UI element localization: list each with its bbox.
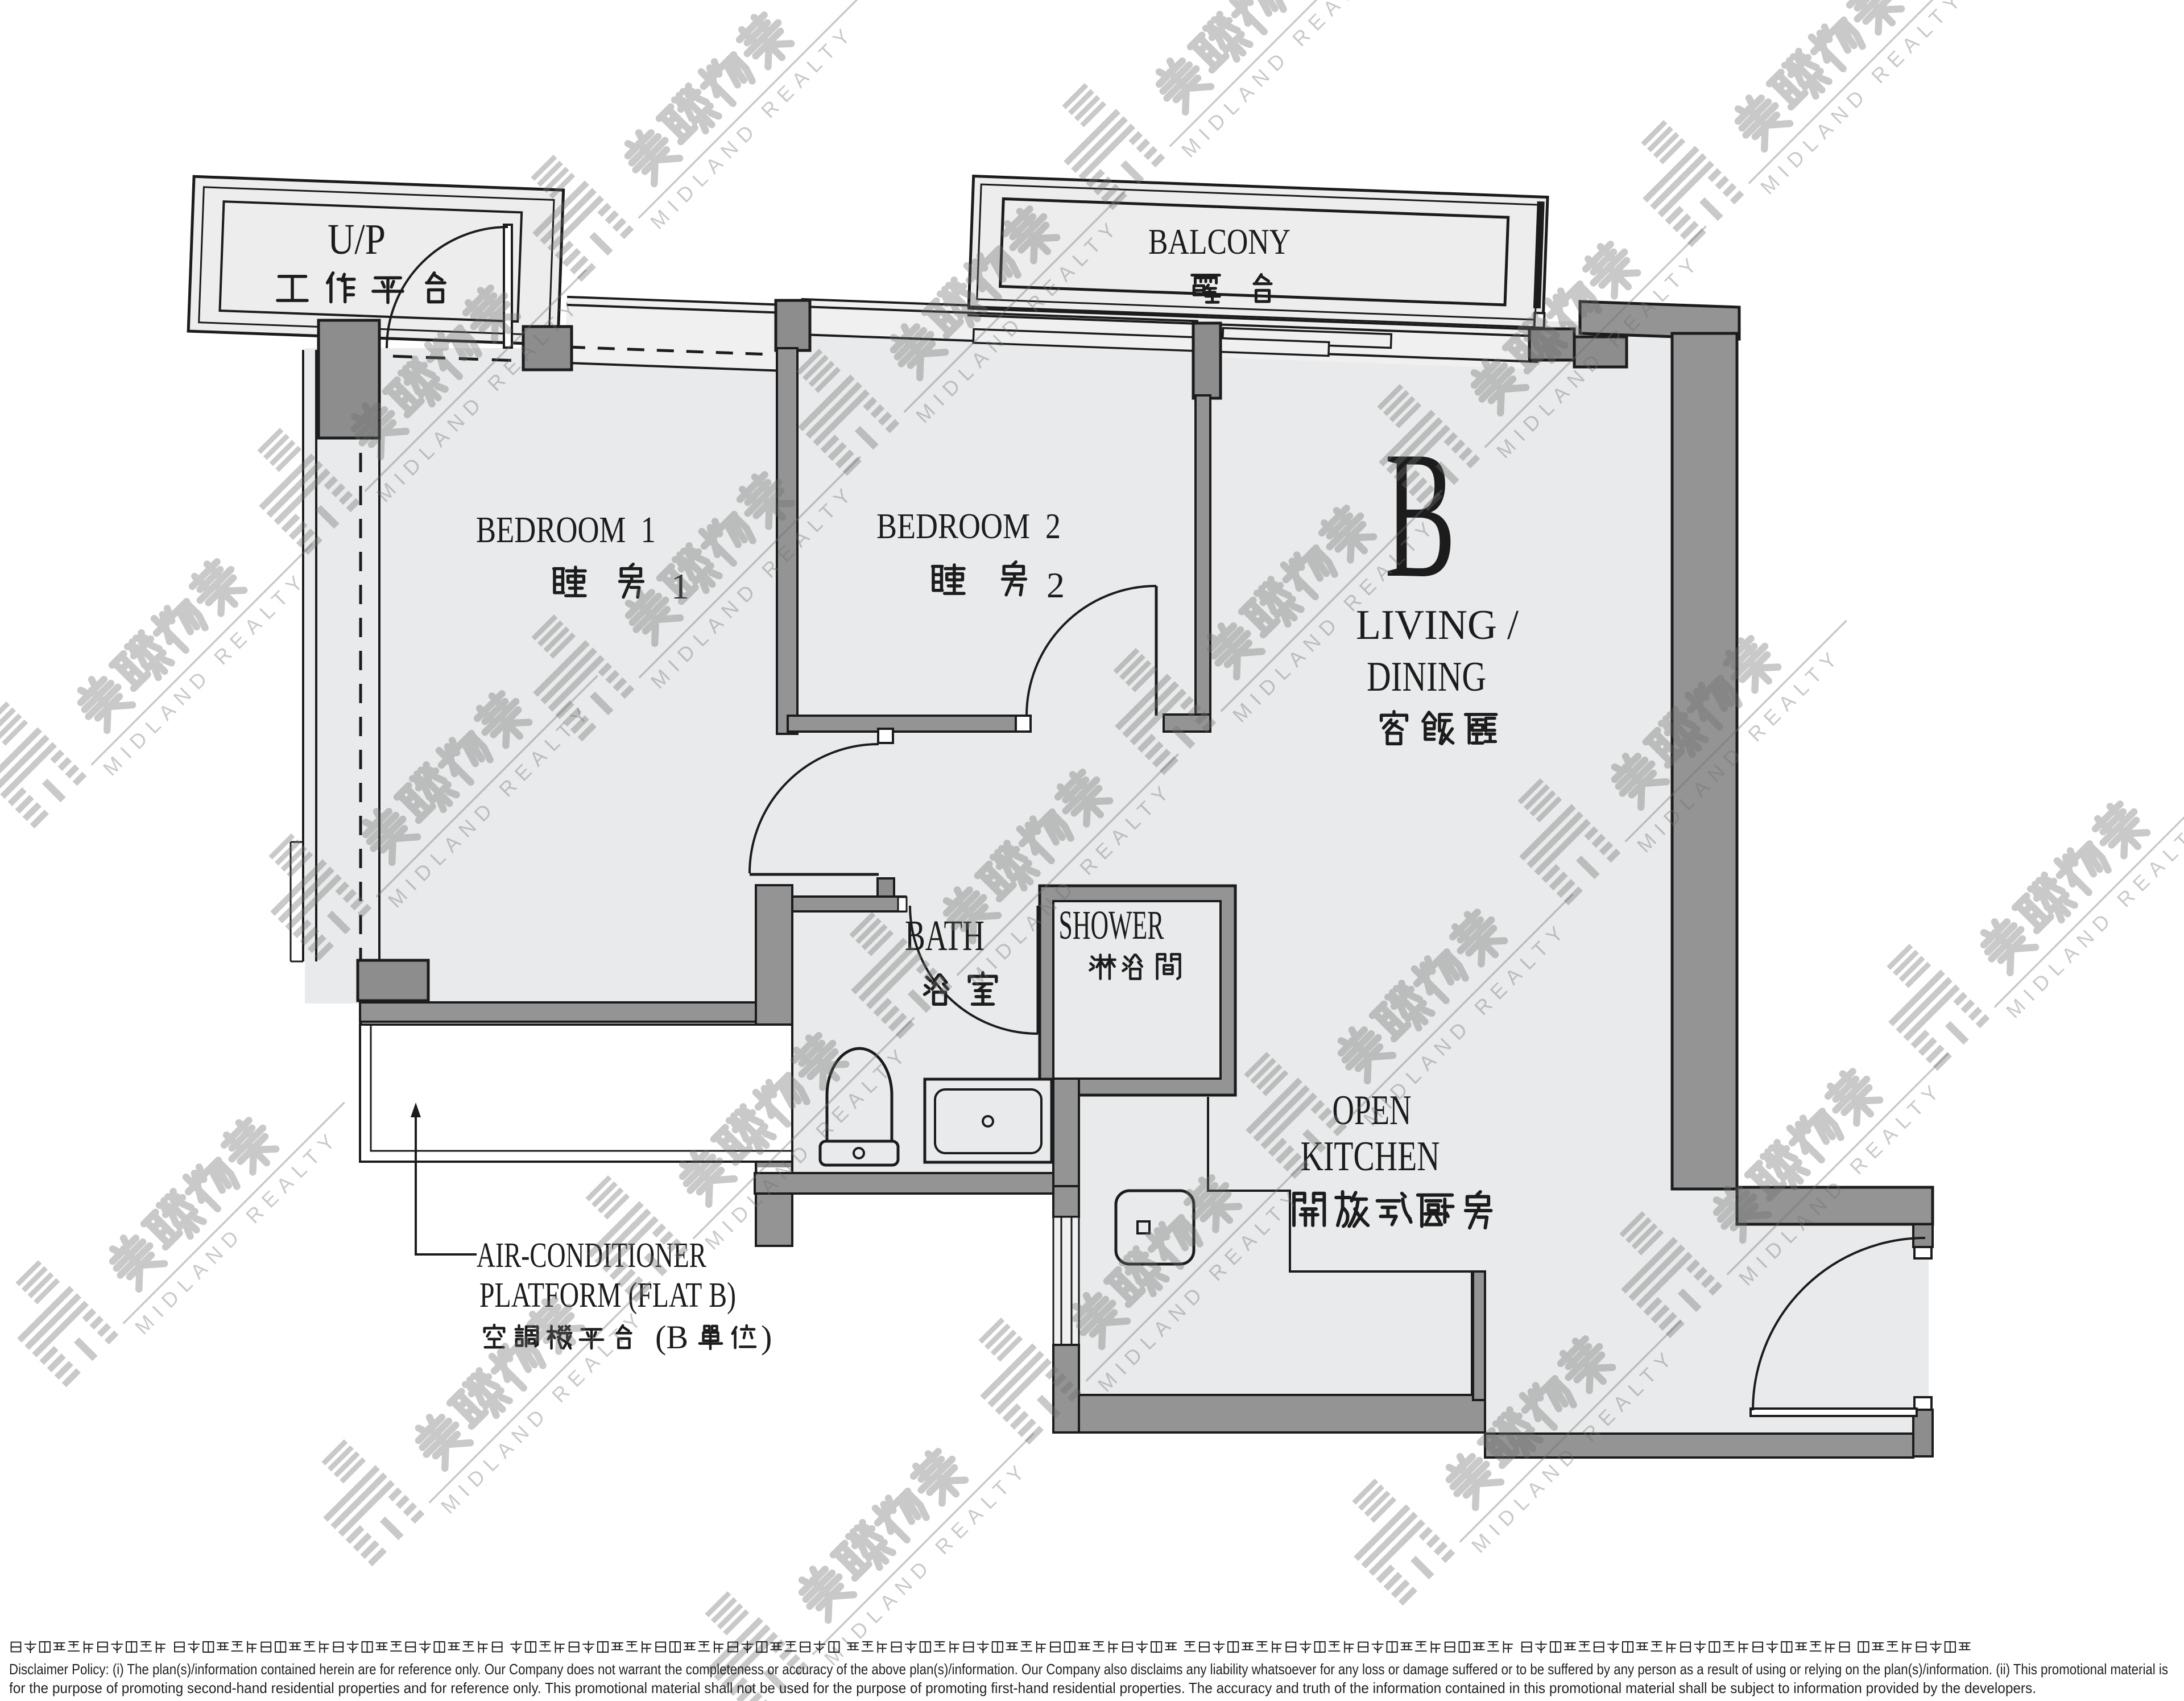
- svg-text:B: B: [1385, 414, 1456, 616]
- svg-text:BEDROOM 1: BEDROOM 1: [476, 509, 656, 551]
- svg-text:PLATFORM (FLAT B): PLATFORM (FLAT B): [479, 1276, 736, 1315]
- svg-text:): ): [761, 1319, 772, 1356]
- svg-text:LIVING /: LIVING /: [1356, 602, 1519, 649]
- svg-text:BALCONY: BALCONY: [1148, 221, 1290, 262]
- svg-text:DINING: DINING: [1367, 654, 1486, 700]
- svg-text:for the purpose of promoting s: for the purpose of promoting second-hand…: [9, 1679, 2036, 1696]
- svg-text:SHOWER: SHOWER: [1059, 902, 1164, 948]
- svg-text:KITCHEN: KITCHEN: [1301, 1133, 1440, 1180]
- svg-text:Disclaimer Policy: (i) The pla: Disclaimer Policy: (i) The plan(s)/infor…: [9, 1661, 2168, 1678]
- svg-text:(B: (B: [655, 1319, 688, 1356]
- svg-text:BEDROOM 2: BEDROOM 2: [876, 506, 1061, 546]
- svg-text:U/P: U/P: [328, 216, 386, 263]
- svg-text:2: 2: [1046, 565, 1065, 605]
